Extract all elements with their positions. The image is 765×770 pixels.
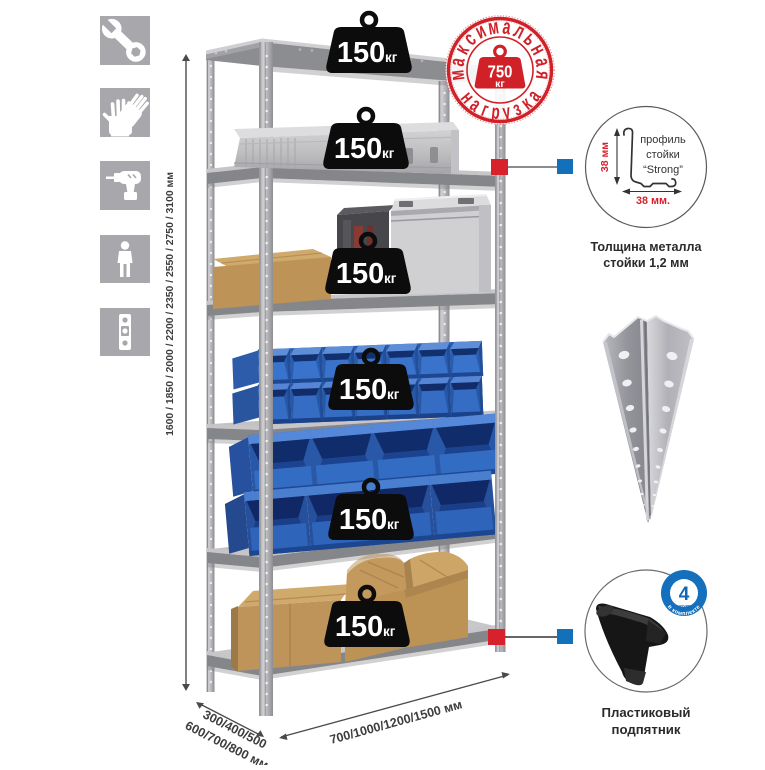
svg-text:4: 4: [679, 584, 690, 605]
svg-text:кг: кг: [495, 78, 505, 90]
svg-text:Толщина металла: Толщина металла: [590, 240, 702, 254]
svg-text:стойки: стойки: [646, 149, 680, 161]
svg-text:38 мм.: 38 мм.: [636, 195, 670, 207]
svg-text:38 мм: 38 мм: [599, 142, 611, 172]
svg-text:штуки: штуки: [677, 604, 691, 609]
svg-text:“Strong”: “Strong”: [643, 164, 683, 176]
svg-text:подпятник: подпятник: [611, 722, 680, 737]
svg-text:Пластиковый: Пластиковый: [601, 705, 690, 720]
svg-text:стойки 1,2 мм: стойки 1,2 мм: [603, 256, 689, 270]
svg-text:профиль: профиль: [640, 134, 686, 146]
svg-text:1600 / 1850 / 2000 / 2200 / 23: 1600 / 1850 / 2000 / 2200 / 2350 / 2550 …: [165, 172, 176, 436]
